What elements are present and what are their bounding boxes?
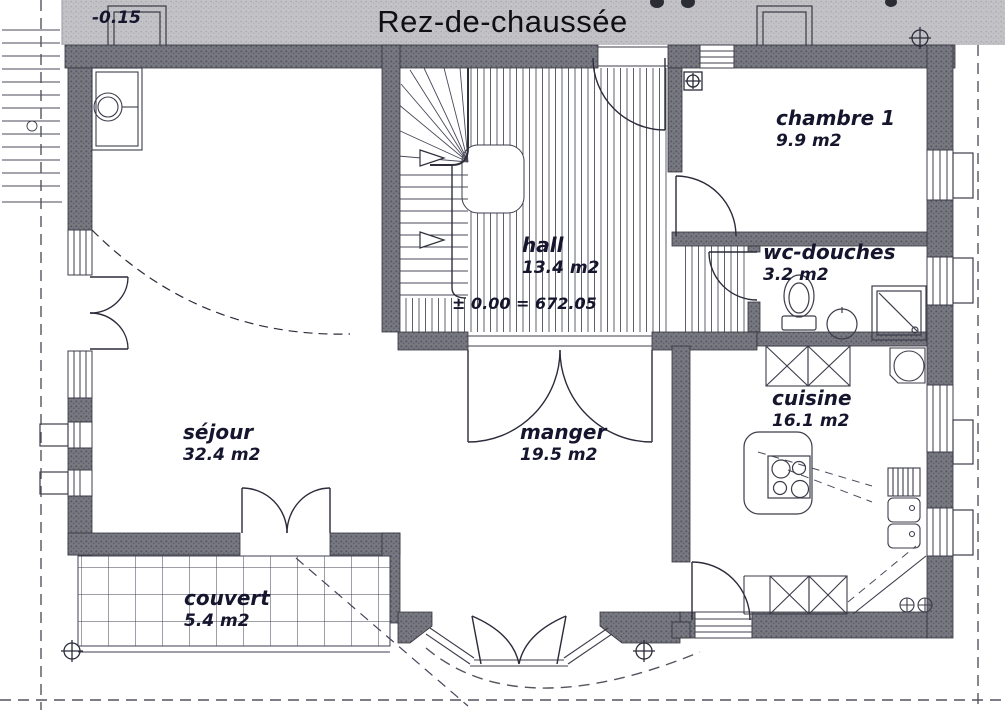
- room-label-hall: hall 13.4 m2: [522, 233, 599, 278]
- room-area: 13.4 m2: [522, 258, 599, 278]
- chambre1-door: [676, 176, 736, 236]
- kitchen-sink: [888, 468, 920, 548]
- room-name: couvert: [184, 586, 270, 610]
- boiler: [92, 68, 142, 150]
- room-name: cuisine: [772, 386, 852, 410]
- kitchen-island: [744, 432, 812, 514]
- room-area: 9.9 m2: [776, 131, 895, 151]
- room-label-manger: manger 19.5 m2: [520, 420, 606, 465]
- room-area: 32.4 m2: [183, 445, 260, 465]
- room-area: 5.4 m2: [184, 611, 270, 631]
- corner-sink: [890, 348, 925, 383]
- page-title: Rez-de-chaussée: [0, 4, 1005, 40]
- exterior-staircase: [2, 30, 62, 202]
- room-name: wc-douches: [763, 240, 896, 264]
- room-label-wc: wc-douches 3.2 m2: [763, 240, 896, 285]
- hob: [768, 456, 810, 498]
- room-area: 19.5 m2: [520, 445, 606, 465]
- sejour-opening-arc: [92, 230, 350, 334]
- room-label-chambre1: chambre 1 9.9 m2: [776, 106, 895, 151]
- sejour-couvert-double-door: [242, 488, 330, 533]
- room-label-cuisine: cuisine 16.1 m2: [772, 386, 852, 431]
- stool-icon: [900, 598, 914, 612]
- cuisine-door: [692, 562, 750, 620]
- room-area: 3.2 m2: [763, 265, 896, 285]
- room-label-couvert: couvert 5.4 m2: [184, 586, 270, 631]
- room-name: manger: [520, 420, 606, 444]
- room-name: chambre 1: [776, 106, 895, 130]
- room-area: 16.1 m2: [772, 411, 852, 431]
- hall-elevation-label: ± 0.00 = 672.05: [452, 294, 597, 313]
- sejour-french-window: [90, 277, 128, 349]
- bay-french-door: [472, 616, 566, 664]
- room-label-sejour: séjour 32.4 m2: [183, 420, 260, 465]
- corner-counter: [853, 556, 932, 614]
- upper-cabinet-dashed: [758, 452, 916, 602]
- bay-boundary-arc: [426, 648, 700, 688]
- stool-icon: [918, 598, 932, 612]
- elevation-marker-entry: -0.15: [92, 8, 141, 28]
- floor-plan-canvas: Rez-de-chaussée -0.15 séjour 32.4 m2 man…: [0, 0, 1005, 710]
- room-name: hall: [522, 233, 599, 257]
- room-name: séjour: [183, 420, 260, 444]
